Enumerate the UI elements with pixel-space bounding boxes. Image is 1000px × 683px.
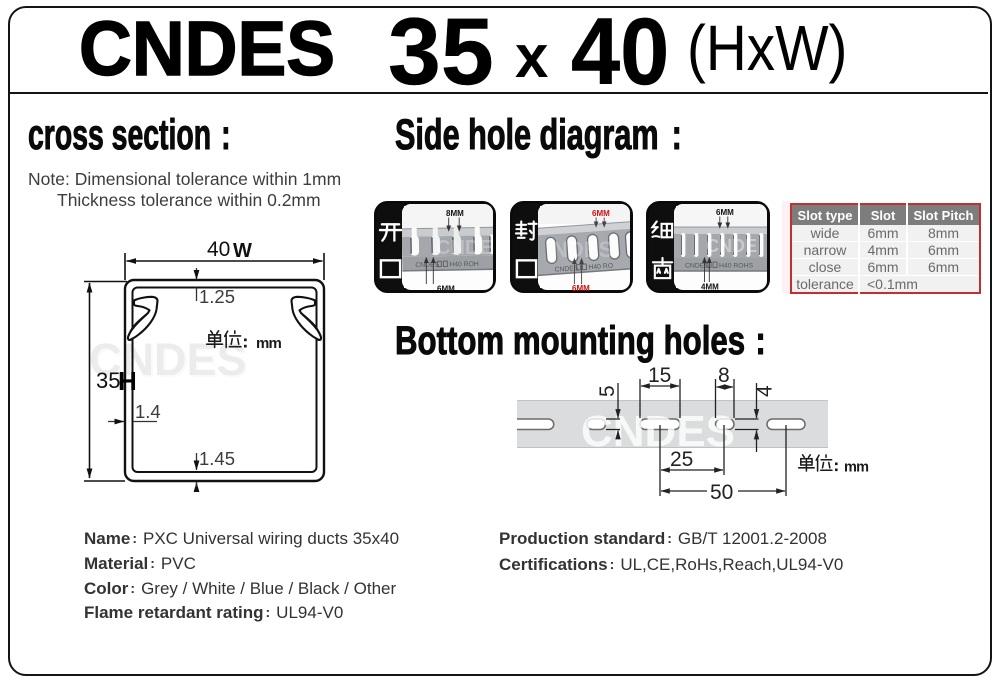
svg-text:15: 15 xyxy=(648,365,671,387)
svg-text:8MM: 8MM xyxy=(446,209,464,218)
svg-text:25: 25 xyxy=(670,448,693,471)
svg-text:mm: mm xyxy=(256,335,282,352)
svg-text:40: 40 xyxy=(207,238,230,261)
svg-text:H40 ROHS: H40 ROHS xyxy=(719,263,753,270)
svg-text:5: 5 xyxy=(596,385,619,397)
svg-text:CNDES: CNDES xyxy=(581,407,735,456)
svg-text:W: W xyxy=(233,240,252,262)
svg-text:H40 ROH: H40 ROH xyxy=(449,261,479,269)
svg-text:1.25: 1.25 xyxy=(199,286,235,307)
svg-text:1.45: 1.45 xyxy=(199,448,235,469)
svg-text:50: 50 xyxy=(710,481,733,504)
svg-text:NDES: NDES xyxy=(552,237,613,262)
svg-text:8: 8 xyxy=(718,365,730,387)
svg-text:H: H xyxy=(118,366,137,396)
svg-text:35: 35 xyxy=(96,368,120,393)
svg-text:6MM: 6MM xyxy=(592,209,610,218)
svg-text:mm: mm xyxy=(844,460,868,476)
svg-text:6MM: 6MM xyxy=(716,208,734,217)
svg-text:CNDE: CNDE xyxy=(706,236,757,256)
svg-text:6MM: 6MM xyxy=(437,285,455,294)
svg-text:CNDES: CNDES xyxy=(685,263,709,270)
svg-text:1.4: 1.4 xyxy=(135,401,161,422)
svg-text:CNDES: CNDES xyxy=(436,237,496,259)
svg-text:6MM: 6MM xyxy=(572,284,590,293)
svg-text:4MM: 4MM xyxy=(701,283,719,292)
